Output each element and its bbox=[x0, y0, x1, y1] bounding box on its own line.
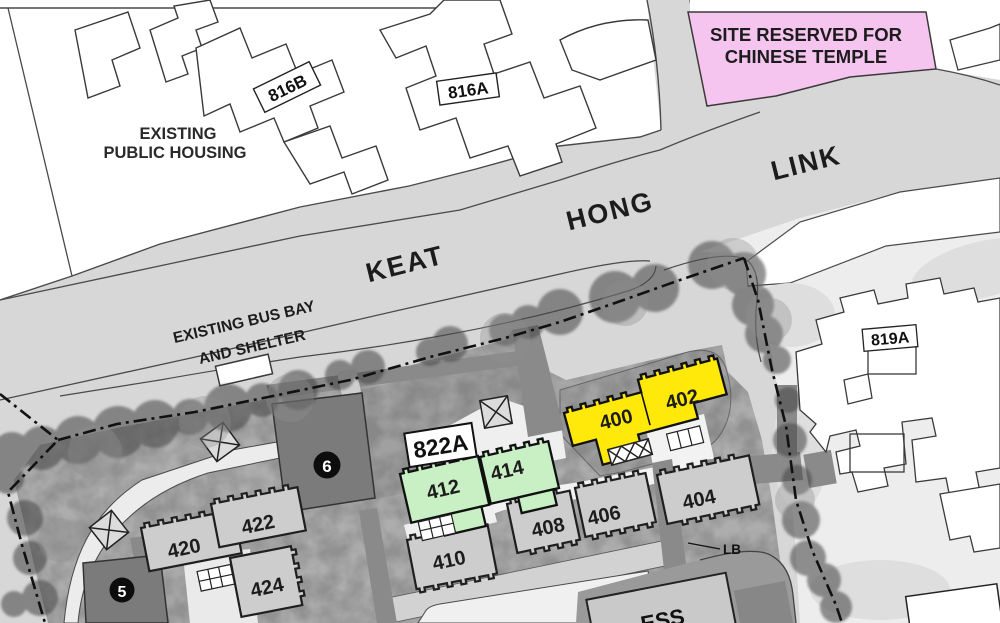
svg-text:SITE RESERVED FOR: SITE RESERVED FOR bbox=[710, 24, 902, 45]
svg-text:819A: 819A bbox=[870, 329, 910, 349]
svg-text:6: 6 bbox=[322, 457, 331, 476]
svg-text:PUBLIC HOUSING: PUBLIC HOUSING bbox=[103, 144, 246, 162]
svg-text:LB: LB bbox=[723, 542, 741, 557]
svg-text:CHINESE TEMPLE: CHINESE TEMPLE bbox=[725, 46, 887, 67]
svg-text:EXISTING: EXISTING bbox=[139, 125, 216, 143]
svg-text:5: 5 bbox=[118, 584, 127, 601]
